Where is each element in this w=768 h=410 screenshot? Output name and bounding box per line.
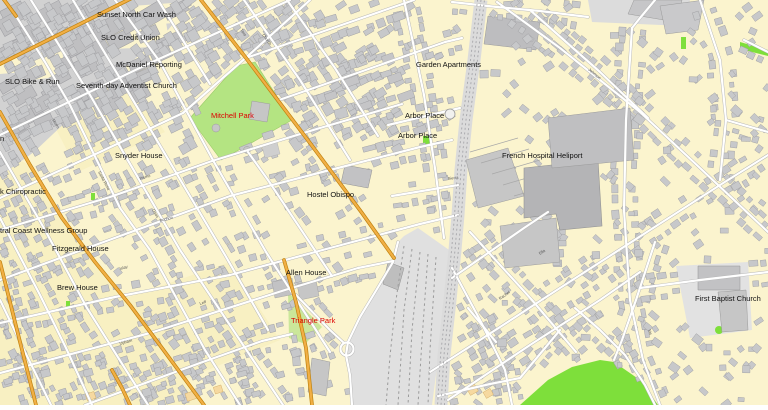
svg-text:Mitchell Park: Mitchell Park [211,111,254,120]
svg-text:Triangle Park: Triangle Park [291,316,336,325]
svg-text:Fitzgerald House: Fitzgerald House [52,244,109,253]
svg-text:Brew House: Brew House [57,283,98,292]
svg-text:Arbor Place: Arbor Place [398,131,437,140]
svg-text:Snyder House: Snyder House [115,151,163,160]
svg-text:Sunset North Car Wash: Sunset North Car Wash [97,10,176,19]
svg-text:Garden Apartments: Garden Apartments [416,60,481,69]
svg-text:McDaniel Reporting: McDaniel Reporting [116,60,182,69]
svg-text:n: n [0,134,4,143]
svg-text:SLO Bike & Run: SLO Bike & Run [5,77,60,86]
svg-text:Seventh-day Adventist Church: Seventh-day Adventist Church [76,81,177,90]
svg-text:First Baptist Church: First Baptist Church [695,294,761,303]
svg-text:Arbor Place: Arbor Place [405,111,444,120]
svg-text:Allen House: Allen House [286,268,326,277]
svg-text:SLO Credit Union: SLO Credit Union [101,33,160,42]
svg-text:Hostel Obispo: Hostel Obispo [307,190,354,199]
svg-text:French Hospital Heliport: French Hospital Heliport [502,151,583,160]
svg-text:k Chiropractic: k Chiropractic [0,187,46,196]
svg-text:tral Coast Wellness Group: tral Coast Wellness Group [0,226,87,235]
